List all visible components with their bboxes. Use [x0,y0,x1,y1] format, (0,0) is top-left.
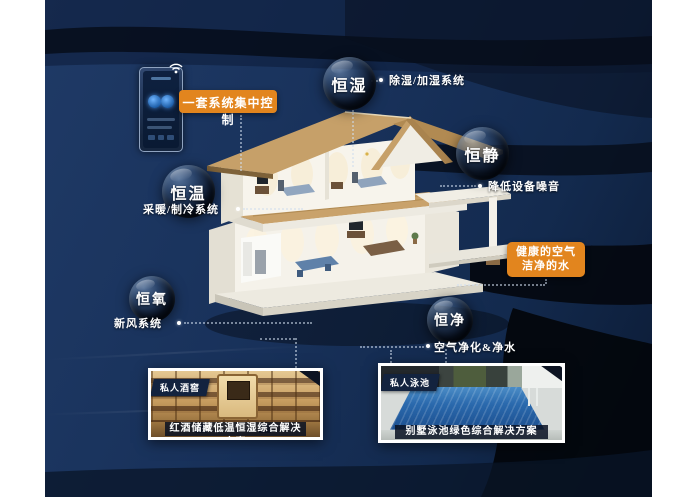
wine-cellar-card: 私人酒窖 红酒储藏低温恒湿综合解决方案 [148,368,323,440]
connector-line [184,322,312,324]
desc-heng-shi: 除湿/加湿系统 [389,72,465,88]
control-callout: 一套系统集中控制 [179,90,277,113]
connector-line [352,110,354,167]
wine-badge: 私人酒窖 [151,379,210,396]
smart-panel-icon [139,67,183,152]
wifi-icon [168,61,184,75]
health-callout: 健康的空气 洁净的水 [507,242,585,277]
poster-canvas: 一套系统集中控制 健康的空气 洁净的水 恒湿 恒静 恒温 恒氧 恒净 除湿/加湿… [45,0,652,497]
connector-line [240,115,242,171]
bubble-label: 恒湿 [331,72,367,96]
bullet-dot [177,321,181,325]
bubble-heng-jing2: 恒净 [427,297,473,343]
desc-heng-jing2: 空气净化&净水 [434,339,516,355]
connector-line [295,338,297,368]
bubble-label: 恒温 [170,180,206,204]
desc-heng-yang: 新风系统 [114,315,162,331]
bullet-dot [426,344,430,348]
connector-line [457,284,545,286]
bubble-label: 恒净 [434,310,466,330]
bullet-dot [379,78,383,82]
health-line1: 健康的空气 [507,245,585,259]
wine-badge-label: 私人酒窖 [160,381,200,394]
bubble-label: 恒氧 [136,289,168,309]
pool-badge: 私人泳池 [381,374,440,391]
health-line2: 洁净的水 [507,259,585,273]
connector-line [260,338,295,340]
connector-line [390,350,392,363]
bubble-heng-shi: 恒湿 [323,57,376,110]
pool-photo: 私人泳池 别墅泳池绿色综合解决方案 [381,366,562,440]
desc-heng-jing: 降低设备噪音 [488,178,560,194]
pool-ladder-icon [528,388,538,406]
bullet-dot [236,207,240,211]
connector-line [360,346,424,348]
bubble-label: 恒静 [464,142,500,166]
pool-card: 私人泳池 别墅泳池绿色综合解决方案 [378,363,565,443]
panel-button-icon [161,95,174,108]
bullet-dot [478,184,482,188]
connector-line [440,185,476,187]
panel-button-icon [148,95,161,108]
bubble-heng-jing: 恒静 [456,127,509,180]
pool-caption: 别墅泳池绿色综合解决方案 [395,425,547,439]
wine-cellar-photo: 私人酒窖 红酒储藏低温恒湿综合解决方案 [151,371,320,437]
wine-arch [217,374,258,419]
panel-screen [143,71,179,148]
pool-badge-label: 私人泳池 [390,376,430,389]
connector-line [243,208,303,210]
wine-caption: 红酒储藏低温恒湿综合解决方案 [165,422,307,436]
